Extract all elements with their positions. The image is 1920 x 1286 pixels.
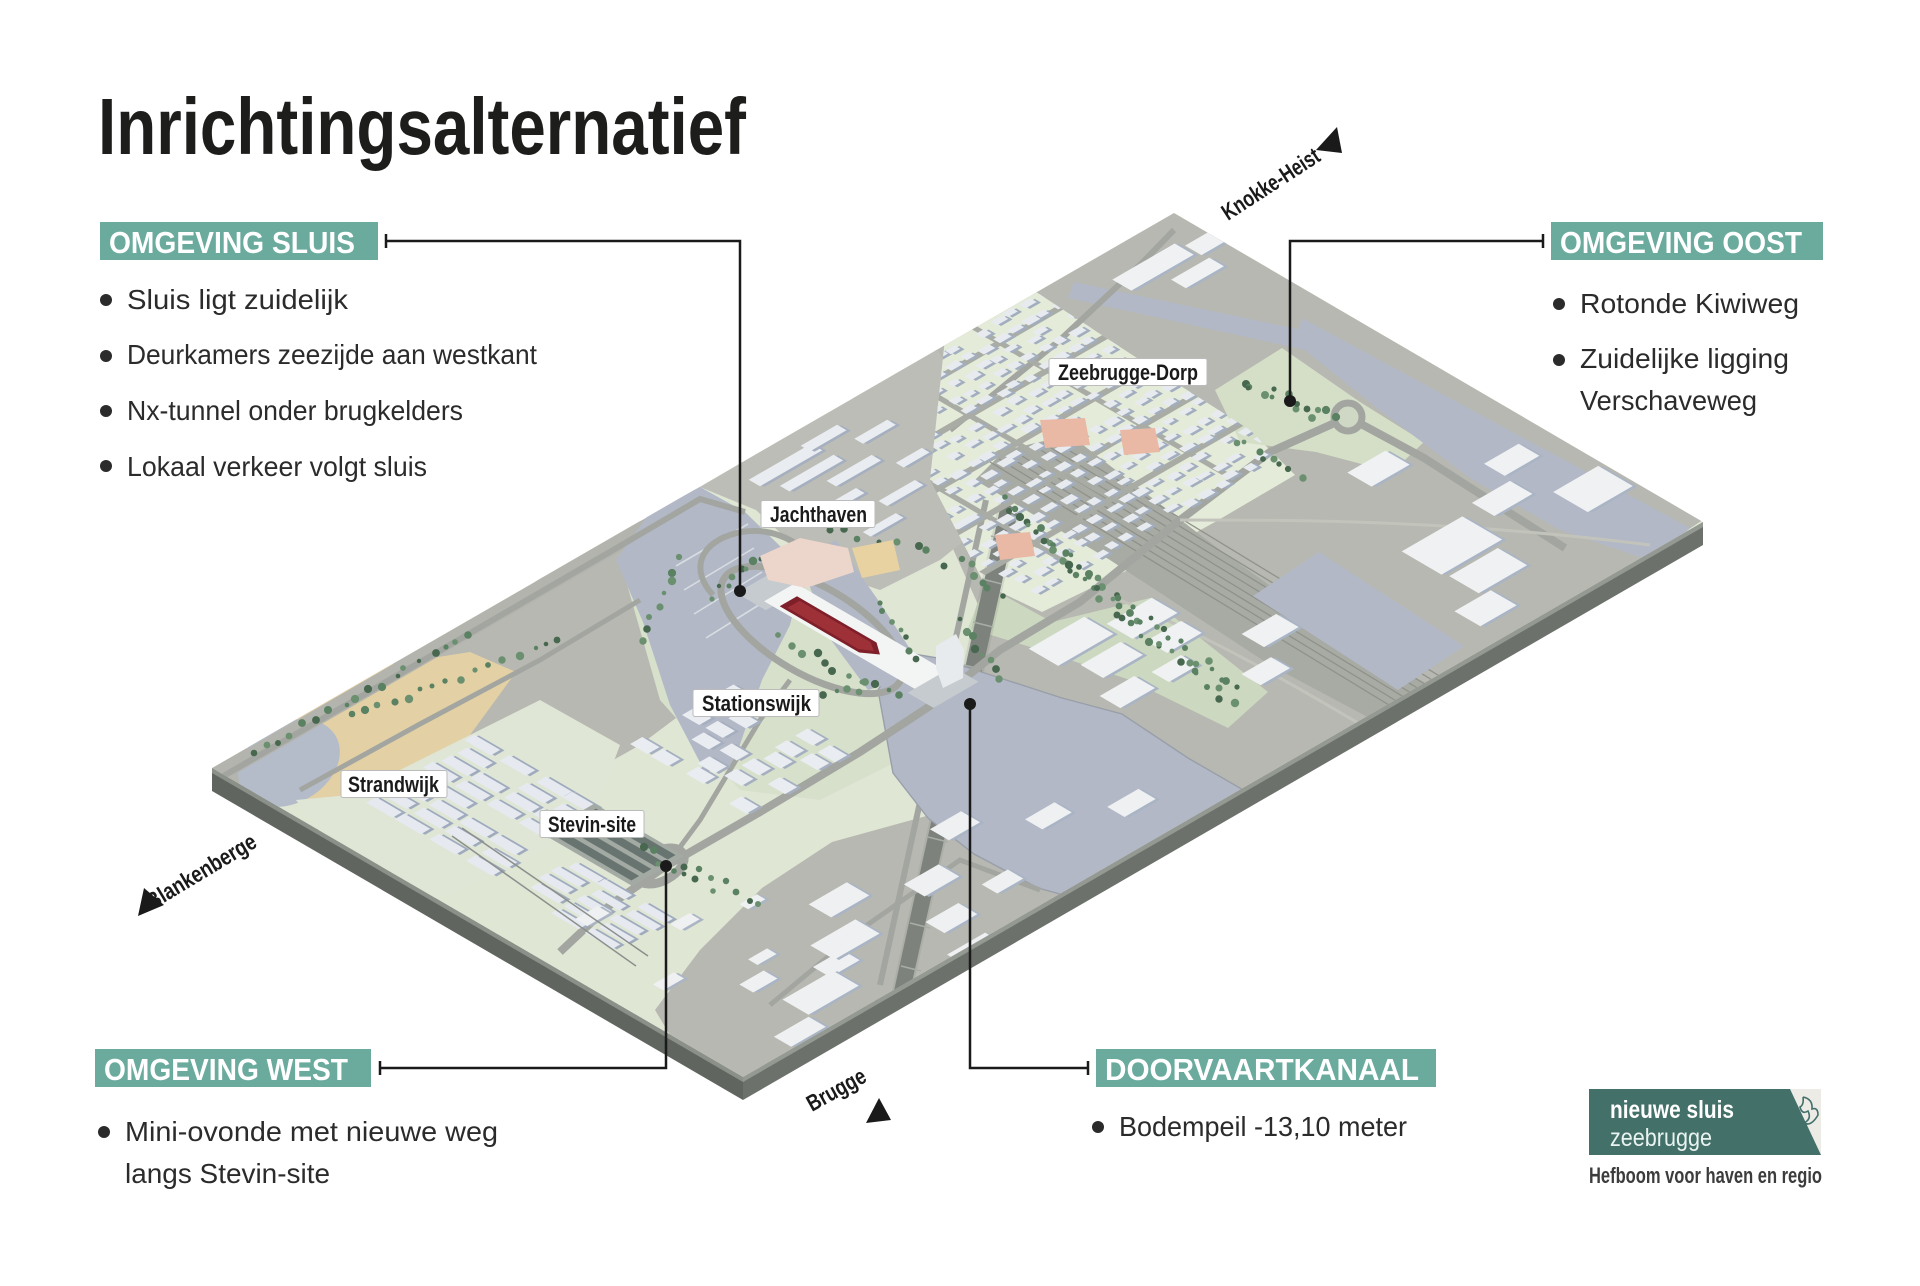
- svg-text:Verschaveweg: Verschaveweg: [1580, 385, 1757, 416]
- svg-text:Strandwijk: Strandwijk: [348, 772, 440, 797]
- svg-text:Zuidelijke ligging: Zuidelijke ligging: [1580, 343, 1789, 374]
- svg-text:Deurkamers zeezijde aan westka: Deurkamers zeezijde aan westkant: [127, 339, 537, 370]
- svg-text:Stationswijk: Stationswijk: [702, 691, 812, 716]
- svg-text:Lokaal verkeer volgt sluis: Lokaal verkeer volgt sluis: [127, 451, 427, 482]
- svg-text:Jachthaven: Jachthaven: [770, 502, 867, 527]
- svg-text:Hefboom voor haven en regio: Hefboom voor haven en regio: [1589, 1163, 1822, 1188]
- svg-text:langs Stevin-site: langs Stevin-site: [125, 1158, 330, 1189]
- svg-text:OMGEVING SLUIS: OMGEVING SLUIS: [109, 225, 355, 260]
- svg-text:OMGEVING OOST: OMGEVING OOST: [1560, 225, 1802, 260]
- svg-text:Inrichtingsalternatief: Inrichtingsalternatief: [98, 82, 746, 171]
- svg-text:OMGEVING WEST: OMGEVING WEST: [104, 1052, 348, 1087]
- svg-text:Nx-tunnel onder brugkelders: Nx-tunnel onder brugkelders: [127, 395, 463, 426]
- svg-text:nieuwe sluis: nieuwe sluis: [1610, 1096, 1734, 1124]
- svg-text:Zeebrugge-Dorp: Zeebrugge-Dorp: [1058, 360, 1198, 385]
- svg-text:Mini-ovonde met nieuwe weg: Mini-ovonde met nieuwe weg: [125, 1116, 498, 1147]
- svg-text:Bodempeil -13,10 meter: Bodempeil -13,10 meter: [1119, 1111, 1407, 1142]
- svg-text:Stevin-site: Stevin-site: [548, 812, 636, 837]
- svg-text:Sluis ligt zuidelijk: Sluis ligt zuidelijk: [127, 284, 349, 315]
- svg-text:Rotonde Kiwiweg: Rotonde Kiwiweg: [1580, 288, 1799, 319]
- svg-text:zeebrugge: zeebrugge: [1610, 1124, 1712, 1152]
- svg-text:DOORVAARTKANAAL: DOORVAARTKANAAL: [1105, 1052, 1419, 1087]
